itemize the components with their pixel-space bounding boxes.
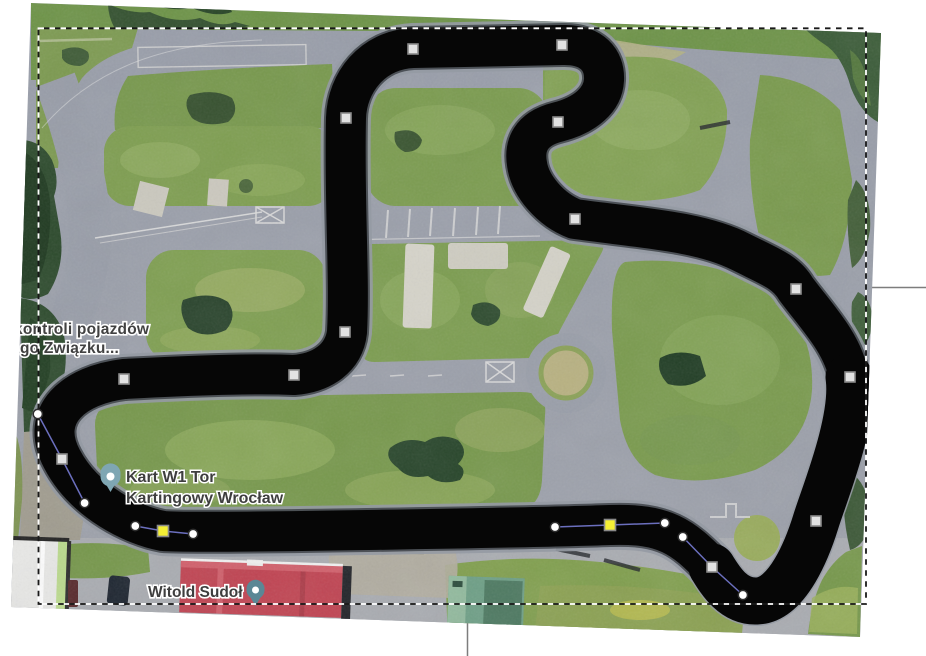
svg-text:go Związku...: go Związku... bbox=[20, 340, 119, 357]
svg-text:kontroli pojazdów: kontroli pojazdów bbox=[14, 321, 150, 338]
svg-text:Kart W1 Tor: Kart W1 Tor bbox=[126, 469, 215, 486]
svg-text:Kartingowy Wrocław: Kartingowy Wrocław bbox=[126, 490, 284, 507]
svg-text:Witold Sudoł: Witold Sudoł bbox=[148, 584, 243, 601]
